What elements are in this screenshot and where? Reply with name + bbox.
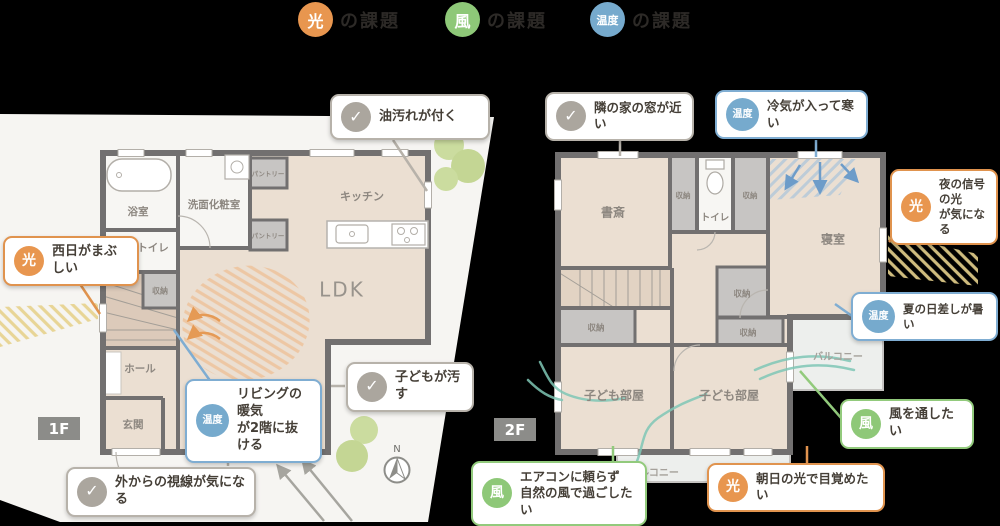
legend-label-light: の課題	[340, 7, 400, 33]
callout-text: 朝日の光で目覚めたい	[756, 471, 874, 504]
room-label-kitchen: キッチン	[340, 190, 384, 203]
room-label-storage-e: 収納	[739, 328, 756, 339]
legend-item-wind: 風 の課題	[445, 2, 547, 37]
stairs-2f	[558, 268, 672, 308]
callout-text: 夜の信号の光 が気になる	[939, 177, 987, 237]
room-label-balcony-right: バルコニー	[813, 351, 863, 363]
check-icon: ✓	[341, 102, 371, 132]
callout-signal-light: 光 夜の信号の光 が気になる	[890, 169, 998, 245]
callout-text: 夏の日差しが暑い	[903, 302, 987, 332]
light-badge-icon: 光	[718, 472, 748, 502]
legend-item-temp: 温度 の課題	[590, 2, 692, 37]
callout-text: 風を通したい	[889, 407, 963, 441]
room-label-bedroom: 寝室	[821, 232, 845, 247]
callout-text: エアコンに頼らず 自然の風で過ごしたい	[520, 469, 636, 518]
check-icon: ✓	[77, 477, 107, 507]
temperature-badge-icon: 温度	[196, 404, 229, 437]
callout-text: 油汚れが付く	[379, 109, 457, 126]
wind-badge-icon: 風	[445, 2, 480, 37]
room-label-storage-d: 収納	[733, 289, 750, 300]
room-label-storage-a: 収納	[676, 190, 691, 200]
callout-warm-air-escapes: 温度 リビングの暖気 が2階に抜ける	[185, 379, 322, 463]
room-label-storage-b: 収納	[743, 190, 758, 200]
callout-text: 外からの視線が気になる	[115, 475, 245, 509]
kitchen-counter-icon	[327, 221, 428, 248]
callout-no-aircon: 風 エアコンに頼らず 自然の風で過ごしたい	[471, 461, 647, 526]
light-badge-icon: 光	[14, 246, 44, 276]
callout-oil-stains: ✓ 油汚れが付く	[330, 94, 490, 140]
legend-label-temp: の課題	[632, 7, 692, 33]
wind-badge-icon: 風	[851, 409, 881, 439]
wind-badge-icon: 風	[482, 478, 512, 508]
check-icon: ✓	[556, 101, 586, 131]
callout-text: 西日がまぶしい	[52, 244, 128, 278]
floor-tag-2f: 2F	[494, 418, 536, 441]
legend-label-wind: の課題	[487, 7, 547, 33]
callout-text: 隣の家の窓が近い	[594, 100, 683, 133]
room-label-hall: ホール	[124, 363, 156, 375]
room-label-toilet1f: トイレ	[137, 242, 169, 254]
room-label-pantry2: パントリー	[252, 231, 285, 240]
callout-west-sun: 光 西日がまぶしい	[3, 236, 139, 286]
room-label-entrance: 玄関	[123, 418, 144, 431]
room-label-ldk: LDK	[319, 278, 365, 302]
callout-text: 冷気が入って寒い	[767, 98, 857, 131]
callout-cold-air: 温度 冷気が入って寒い	[715, 90, 868, 139]
floor-tag-1f: 1F	[38, 417, 80, 440]
legend-item-light: 光 の課題	[298, 2, 400, 37]
temperature-badge-icon: 温度	[590, 2, 625, 37]
room-label-washroom: 洗面化粧室	[188, 198, 241, 211]
callout-text: 子どもが汚す	[395, 370, 463, 404]
callout-morning-sun: 光 朝日の光で目覚めたい	[707, 463, 885, 512]
callout-outside-gaze: ✓ 外からの視線が気になる	[66, 467, 256, 517]
callout-summer-sun: 温度 夏の日差しが暑い	[851, 292, 998, 341]
bathtub-icon	[107, 159, 171, 191]
callout-wind-through: 風 風を通したい	[840, 399, 974, 449]
callout-text: リビングの暖気 が2階に抜ける	[237, 387, 311, 455]
washbasin-icon	[225, 155, 249, 179]
temperature-badge-icon: 温度	[726, 98, 759, 131]
check-icon: ✓	[357, 372, 387, 402]
room-label-storage1f: 収納	[152, 286, 168, 296]
room-label-bath: 浴室	[128, 205, 149, 218]
callout-kids-mess: ✓ 子どもが汚す	[346, 362, 474, 412]
room-label-kids-right: 子ども部屋	[699, 388, 759, 403]
room-label-toilet2f: トイレ	[701, 213, 730, 224]
callout-neighbor-window: ✓ 隣の家の窓が近い	[545, 92, 694, 141]
toilet-icon	[706, 160, 724, 194]
compass-north-label: N	[393, 444, 400, 455]
room-label-storage-c: 収納	[587, 323, 604, 334]
temperature-badge-icon: 温度	[862, 300, 895, 333]
room-label-pantry1: パントリー	[252, 169, 285, 178]
light-badge-icon: 光	[298, 2, 333, 37]
light-badge-icon: 光	[901, 192, 931, 222]
room-label-kids-left: 子ども部屋	[584, 388, 644, 403]
room-label-study: 書斎	[601, 205, 625, 220]
